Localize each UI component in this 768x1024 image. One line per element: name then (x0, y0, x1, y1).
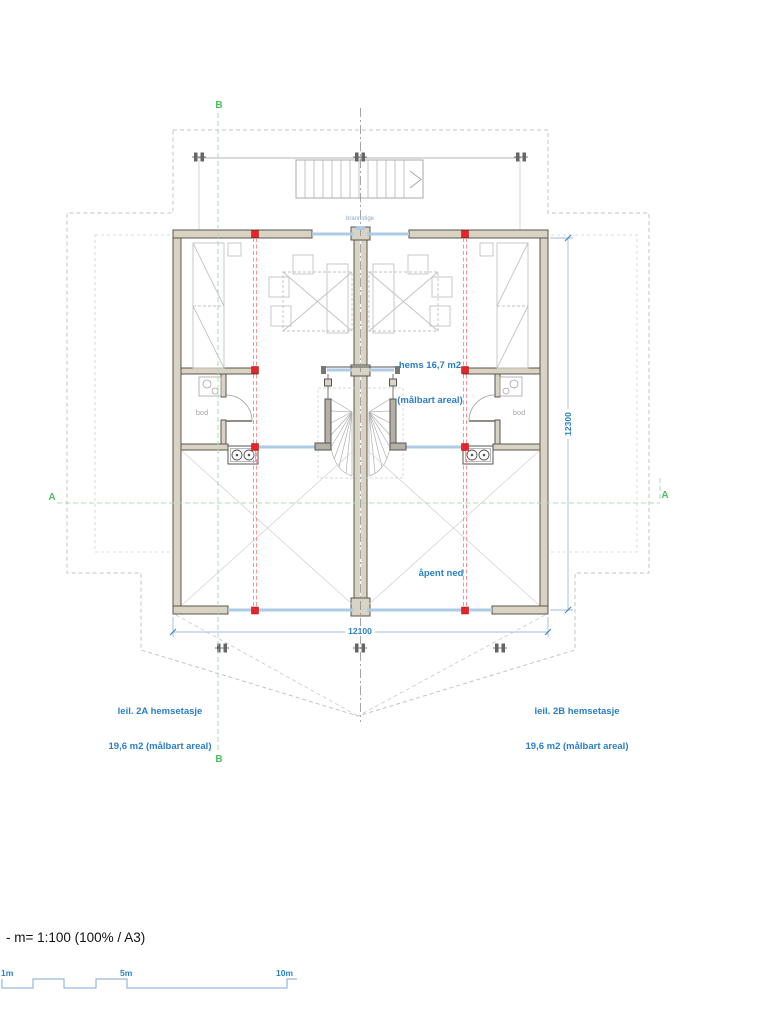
section-marker-a-left: A (48, 492, 55, 503)
scale-bar (2, 979, 297, 988)
leil-2a-label: leil. 2A hemsetasje 19,6 m2 (målbart are… (109, 683, 212, 764)
section-marker-b-top: B (215, 100, 222, 111)
bod-left-label: bod (196, 408, 209, 417)
scale-tick-10m: 10m (276, 968, 293, 978)
leil-2b-line2: 19,6 m2 (målbart areal) (526, 741, 629, 753)
scale-note: - m= 1:100 (100% / A3) (6, 930, 145, 945)
leil-2a-line1: leil. 2A hemsetasje (109, 706, 212, 718)
apent-ned-label: åpent ned (419, 545, 464, 591)
leil-2b-line1: leil. 2B hemsetasje (526, 706, 629, 718)
bod-right-label: bod (513, 408, 526, 417)
scale-tick-1m: 1m (1, 968, 13, 978)
apent-ned-text: åpent ned (419, 568, 464, 580)
leil-2a-line2: 19,6 m2 (målbart areal) (109, 741, 212, 753)
hems-area-label: hems 16,7 m2 (målbart areal) (397, 337, 462, 418)
hems-area-line2: (målbart areal) (397, 395, 462, 407)
leil-2b-label: leil. 2B hemsetasje 19,6 m2 (målbart are… (526, 683, 629, 764)
dimension-depth-text: 12300 (563, 409, 573, 439)
hems-area-line1: hems 16,7 m2 (397, 360, 462, 372)
upper-stair (296, 160, 423, 198)
brannstige-marker (356, 226, 365, 230)
section-marker-a-right: A (661, 490, 668, 501)
floor-plan-drawing (0, 0, 768, 1024)
floor-plan-sheet: hems 16,7 m2 (målbart areal) åpent ned l… (0, 0, 768, 1024)
brannstige-label: brannstige (346, 216, 374, 222)
dimension-width-text: 12100 (345, 626, 375, 636)
section-marker-b-bottom: B (215, 754, 222, 765)
scale-tick-5m: 5m (120, 968, 132, 978)
